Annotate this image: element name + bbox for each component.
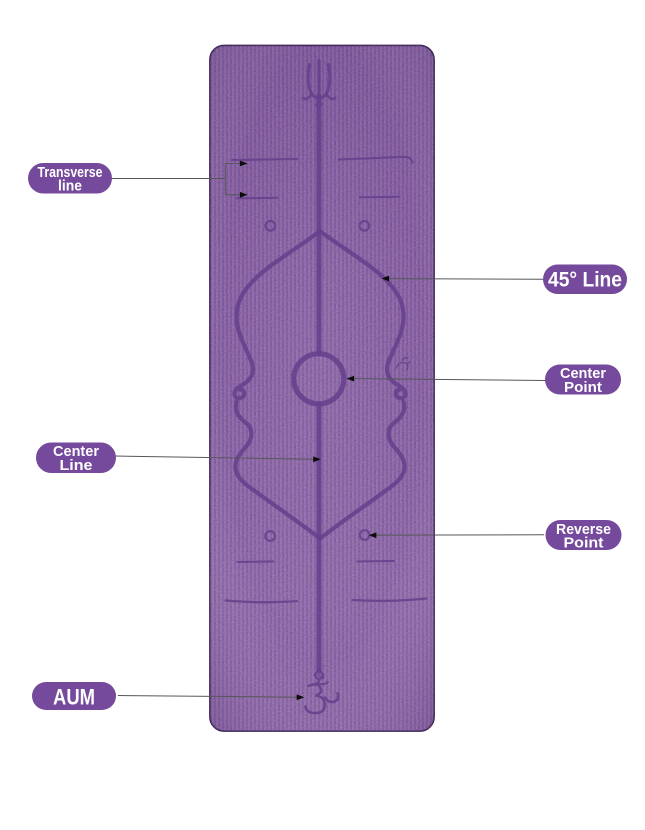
- svg-text:Line: Line: [60, 457, 93, 474]
- svg-text:45° Line: 45° Line: [548, 269, 622, 292]
- svg-text:AUM: AUM: [53, 685, 95, 710]
- svg-text:Point: Point: [564, 535, 604, 552]
- svg-text:line: line: [58, 178, 82, 195]
- svg-text:Point: Point: [564, 380, 602, 396]
